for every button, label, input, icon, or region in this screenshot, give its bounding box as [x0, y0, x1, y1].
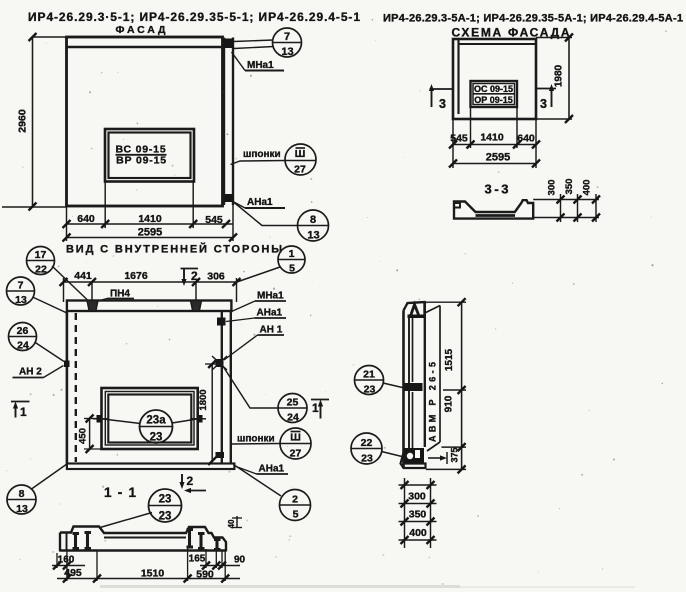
- svg-text:АН 2: АН 2: [19, 367, 42, 378]
- svg-text:ИР4-26.29.3-5А-1; ИР4-26.29.35: ИР4-26.29.3-5А-1; ИР4-26.29.35-5А-1; ИР4…: [383, 13, 683, 25]
- svg-text:910: 910: [444, 395, 455, 412]
- svg-text:13: 13: [281, 46, 293, 58]
- svg-text:300: 300: [408, 491, 426, 503]
- svg-text:ОС 09-15: ОС 09-15: [474, 84, 513, 94]
- svg-text:2: 2: [292, 494, 298, 506]
- svg-text:7: 7: [18, 280, 24, 292]
- svg-text:1-1: 1-1: [104, 485, 136, 500]
- svg-text:22: 22: [35, 264, 47, 276]
- svg-text:350: 350: [564, 179, 575, 195]
- svg-text:24: 24: [287, 412, 299, 424]
- svg-text:1: 1: [289, 248, 295, 260]
- svg-text:17: 17: [35, 249, 47, 261]
- svg-text:160: 160: [58, 555, 75, 566]
- svg-text:27: 27: [294, 164, 306, 176]
- svg-text:545: 545: [450, 133, 468, 145]
- svg-text:ОР 09-15: ОР 09-15: [474, 95, 513, 105]
- svg-text:23: 23: [361, 453, 373, 465]
- svg-text:Ш: Ш: [295, 148, 306, 160]
- svg-text:13: 13: [15, 294, 27, 306]
- svg-text:22: 22: [361, 437, 373, 449]
- svg-text:1800: 1800: [198, 389, 209, 410]
- svg-text:27: 27: [290, 448, 302, 460]
- svg-text:3: 3: [439, 97, 446, 111]
- svg-text:495: 495: [64, 567, 82, 579]
- svg-text:1515: 1515: [444, 348, 455, 371]
- svg-text:165: 165: [189, 554, 206, 565]
- svg-text:8: 8: [19, 488, 25, 500]
- svg-text:400: 400: [409, 527, 427, 539]
- svg-text:1980: 1980: [554, 64, 565, 87]
- svg-text:441: 441: [74, 270, 92, 282]
- svg-text:450: 450: [78, 428, 89, 444]
- svg-text:2960: 2960: [17, 109, 29, 133]
- svg-text:400: 400: [582, 180, 593, 196]
- svg-text:АВМ Р 26-5: АВМ Р 26-5: [428, 362, 438, 442]
- svg-text:350: 350: [409, 509, 427, 521]
- svg-text:1: 1: [312, 401, 319, 415]
- svg-text:23: 23: [159, 511, 172, 523]
- svg-text:шпонки: шпонки: [237, 434, 275, 445]
- svg-text:3: 3: [540, 97, 547, 111]
- svg-text:1510: 1510: [141, 568, 165, 580]
- svg-text:300: 300: [547, 180, 558, 196]
- svg-text:1: 1: [20, 405, 27, 419]
- svg-text:2: 2: [191, 269, 198, 283]
- svg-text:ФАСАД: ФАСАД: [116, 24, 170, 36]
- svg-text:Ш: Ш: [290, 432, 301, 444]
- svg-text:АНа1: АНа1: [257, 308, 283, 319]
- svg-text:1410: 1410: [480, 132, 504, 144]
- svg-text:1676: 1676: [124, 270, 148, 282]
- svg-text:21: 21: [363, 369, 375, 381]
- svg-text:ИР4-26.29.3·5-1; ИР4-26.29.35-: ИР4-26.29.3·5-1; ИР4-26.29.35-5-1; ИР4-2…: [28, 10, 360, 24]
- svg-text:2595: 2595: [138, 227, 162, 239]
- svg-text:2: 2: [187, 474, 194, 488]
- svg-text:МНа1: МНа1: [247, 60, 274, 71]
- svg-text:40: 40: [227, 519, 236, 528]
- svg-text:640: 640: [77, 213, 95, 225]
- svg-text:7: 7: [284, 31, 290, 43]
- svg-text:ВР 09-15: ВР 09-15: [116, 155, 167, 167]
- svg-text:306: 306: [207, 271, 225, 283]
- svg-text:23: 23: [159, 494, 172, 506]
- svg-text:25: 25: [287, 397, 299, 409]
- svg-text:23: 23: [150, 432, 163, 444]
- svg-text:ВИД С ВНУТРЕННЕЙ СТОРОНЫ: ВИД С ВНУТРЕННЕЙ СТОРОНЫ: [66, 243, 282, 256]
- svg-text:2595: 2595: [486, 152, 510, 164]
- svg-text:1410: 1410: [138, 213, 162, 225]
- svg-text:13: 13: [16, 503, 28, 515]
- svg-text:375: 375: [450, 447, 460, 462]
- svg-text:23а: 23а: [146, 415, 166, 427]
- svg-text:АН 1: АН 1: [260, 325, 283, 336]
- svg-text:13: 13: [307, 230, 319, 242]
- svg-text:590: 590: [196, 569, 214, 581]
- svg-text:3-3: 3-3: [485, 182, 509, 197]
- svg-text:90: 90: [234, 555, 246, 566]
- svg-text:640: 640: [517, 133, 535, 145]
- svg-text:АНа1: АНа1: [247, 197, 273, 208]
- svg-text:АНа1: АНа1: [259, 464, 285, 475]
- svg-text:23: 23: [364, 384, 376, 396]
- svg-text:5: 5: [293, 509, 299, 521]
- svg-text:5: 5: [289, 263, 295, 275]
- svg-text:8: 8: [310, 214, 316, 226]
- svg-text:МНа1: МНа1: [257, 291, 284, 302]
- svg-text:26: 26: [17, 325, 29, 337]
- svg-text:545: 545: [205, 214, 223, 226]
- svg-text:шпонки: шпонки: [243, 149, 281, 160]
- svg-text:24: 24: [17, 340, 29, 352]
